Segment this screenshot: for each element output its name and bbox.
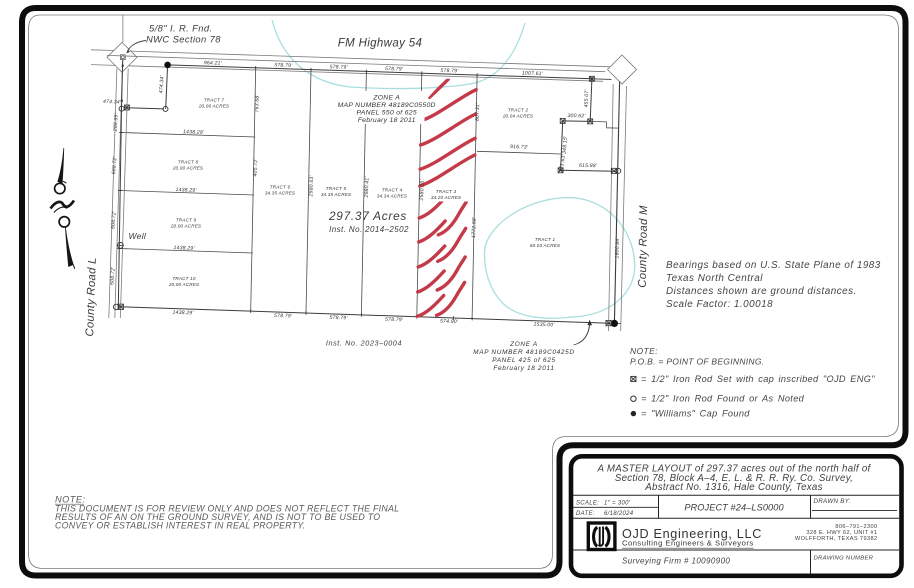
svg-text:455.07': 455.07': [584, 89, 591, 108]
svg-text:474.34': 474.34': [103, 99, 122, 106]
svg-text:34.34 ACRES: 34.34 ACRES: [377, 194, 408, 199]
svg-text:34.35 ACRES: 34.35 ACRES: [321, 192, 352, 197]
svg-text:297.37 Acres: 297.37 Acres: [328, 209, 407, 223]
svg-text:20.00 ACRES: 20.00 ACRES: [170, 224, 202, 229]
svg-text:DRAWING NUMBER: DRAWING NUMBER: [814, 556, 874, 562]
svg-text:TRACT 7: TRACT 7: [204, 98, 225, 103]
svg-text:TRACT 10: TRACT 10: [172, 276, 195, 281]
svg-text:County Road M: County Road M: [637, 205, 650, 288]
svg-text:763.68': 763.68': [254, 94, 261, 113]
svg-text:20.04 ACRES: 20.04 ACRES: [502, 114, 534, 119]
svg-text:578.79': 578.79': [330, 64, 349, 71]
svg-text:MAP NUMBER 48189C0425D: MAP NUMBER 48189C0425D: [473, 349, 574, 356]
svg-text:NWC Section 78: NWC Section 78: [146, 34, 221, 45]
svg-text:578.79': 578.79': [274, 313, 293, 320]
svg-text:578.79': 578.79': [274, 62, 293, 69]
svg-text:TRACT 1: TRACT 1: [535, 237, 556, 242]
svg-text:SCALE:: SCALE:: [576, 500, 599, 506]
svg-text:20.00 ACRES: 20.00 ACRES: [168, 282, 200, 287]
svg-text:578.79': 578.79': [385, 66, 404, 73]
svg-text:PROJECT #24–LS0000: PROJECT #24–LS0000: [684, 503, 784, 513]
svg-text:P.O.B. = POINT OF BEGINNIN: P.O.B. = POINT OF BEGINNING.: [630, 357, 764, 367]
svg-text:DRAWN BY:: DRAWN BY:: [814, 498, 851, 505]
svg-text:405.72': 405.72': [253, 158, 260, 177]
svg-text:806–791–2300: 806–791–2300: [835, 524, 877, 530]
svg-text:578.79': 578.79': [385, 317, 404, 324]
svg-text:615.88': 615.88': [579, 163, 598, 169]
svg-text:= "Williams" Cap Found: = "Williams" Cap Found: [641, 409, 750, 419]
svg-text:Surveying Firm # 10090900: Surveying Firm # 10090900: [622, 556, 730, 565]
svg-text:Well: Well: [129, 231, 147, 241]
svg-text:1600.84': 1600.84': [614, 237, 621, 259]
svg-text:34.35 ACRES: 34.35 ACRES: [265, 191, 296, 196]
svg-text:Scale Factor: 1.00018: Scale Factor: 1.00018: [666, 299, 773, 310]
svg-text:WOLFFORTH, TEXAS 79382: WOLFFORTH, TEXAS 79382: [795, 536, 878, 542]
svg-text:60.03 ACRES: 60.03 ACRES: [530, 243, 561, 248]
svg-text:DATE:: DATE:: [576, 511, 595, 517]
svg-text:= 1/2" Iron Rod Found or: = 1/2" Iron Rod Found or As Noted: [641, 394, 805, 404]
svg-text:1438.29': 1438.29': [183, 129, 205, 136]
svg-text:Distances shown are ground dis: Distances shown are ground distances.: [666, 286, 857, 297]
svg-text:TRACT 9: TRACT 9: [176, 218, 197, 223]
svg-text:TRACT 5: TRACT 5: [326, 186, 347, 191]
svg-text:2980.41': 2980.41': [364, 176, 371, 199]
svg-text:574.90': 574.90': [440, 319, 459, 326]
svg-text:20.06 ACRES: 20.06 ACRES: [198, 104, 230, 109]
svg-text:578.79': 578.79': [440, 68, 459, 75]
svg-text:PANEL 425 of 625: PANEL 425 of 625: [492, 357, 556, 364]
svg-text:Bearings based on U.S. State P: Bearings based on U.S. State Plane of 19…: [666, 260, 881, 271]
svg-text:1" = 300': 1" = 300': [604, 500, 631, 506]
svg-text:5/8" I. R. Fnd.: 5/8" I. R. Fnd.: [149, 23, 213, 34]
svg-text:6/18/2024: 6/18/2024: [604, 511, 634, 517]
svg-text:1438.29': 1438.29': [173, 245, 195, 252]
svg-text:MAP NUMBER 48189C0550D: MAP NUMBER 48189C0550D: [338, 102, 436, 109]
svg-text:1438.29': 1438.29': [172, 310, 194, 317]
svg-text:Inst. No. 2014–2502: Inst. No. 2014–2502: [329, 225, 409, 234]
svg-text:PANEL 550 of 625: PANEL 550 of 625: [356, 109, 416, 116]
svg-text:TRACT 6: TRACT 6: [270, 185, 291, 190]
svg-text:ZONE A: ZONE A: [509, 341, 538, 348]
svg-text:20.00 ACRES: 20.00 ACRES: [172, 166, 204, 171]
svg-text:Inst. No. 2023–0004: Inst. No. 2023–0004: [326, 338, 402, 347]
svg-text:TRACT 2: TRACT 2: [508, 108, 529, 113]
svg-text:FM Highway 54: FM Highway 54: [338, 38, 422, 50]
svg-text:= 1/2" Iron Rod Set with: = 1/2" Iron Rod Set with cap inscribed "…: [641, 374, 875, 384]
svg-text:1772.68': 1772.68': [471, 216, 478, 238]
svg-text:916.73': 916.73': [510, 144, 529, 151]
svg-text:TRACT 3: TRACT 3: [436, 189, 457, 194]
svg-text:2580.26': 2580.26': [419, 179, 426, 202]
svg-text:Abstract No. 1316, Hale Co: Abstract No. 1316, Hale County, Texas: [644, 482, 823, 493]
svg-text:ZONE A: ZONE A: [372, 94, 400, 101]
svg-text:34.20 ACRES: 34.20 ACRES: [431, 195, 462, 200]
svg-text:964.21': 964.21': [204, 60, 223, 67]
svg-text:1438.29': 1438.29': [175, 187, 197, 194]
svg-text:807.31': 807.31': [475, 102, 482, 121]
svg-text:1535.00': 1535.00': [533, 322, 555, 329]
svg-text:TRACT 4: TRACT 4: [382, 188, 403, 193]
svg-text:TRACT 8: TRACT 8: [178, 160, 199, 165]
svg-text:NOTE:: NOTE:: [630, 346, 658, 356]
svg-text:February 18 2011: February 18 2011: [358, 117, 416, 124]
svg-text:2980.63': 2980.63': [308, 175, 315, 198]
svg-text:1007.61': 1007.61': [522, 70, 544, 77]
svg-text:300.62': 300.62': [567, 113, 586, 119]
svg-text:February 18 2011: February 18 2011: [493, 365, 554, 372]
svg-text:578.79': 578.79': [329, 315, 348, 322]
svg-text:Consulting Engineers & Surv: Consulting Engineers & Surveyors: [622, 539, 754, 548]
svg-text:Texas North Central: Texas North Central: [666, 273, 763, 284]
svg-text:CONVEY OR ESTABLISH INTERES: CONVEY OR ESTABLISH INTEREST IN REAL PRO…: [55, 521, 305, 531]
